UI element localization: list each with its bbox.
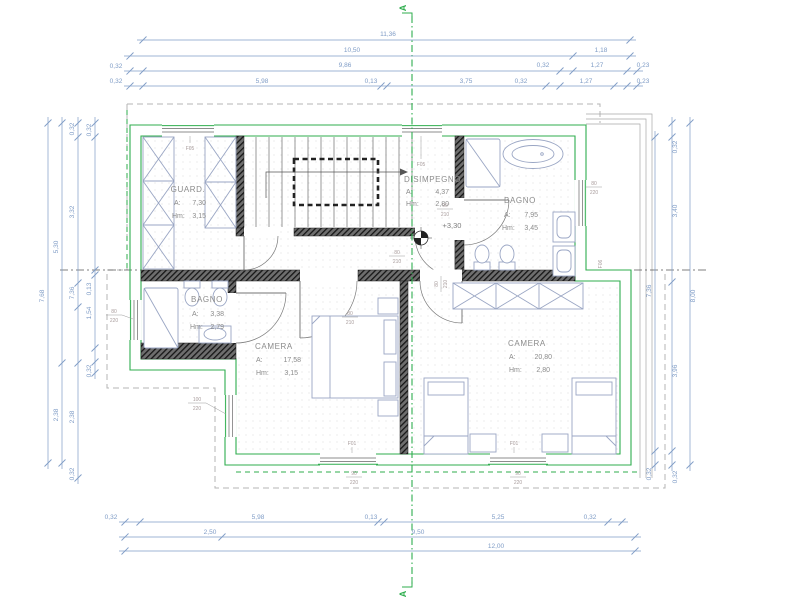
dimension-label: 0,13	[365, 78, 378, 85]
window-tag: F05	[186, 146, 195, 152]
room-height-label: Hm:	[509, 367, 522, 374]
dimension-label: 12,00	[488, 543, 505, 550]
dimension-label: 0,32	[105, 514, 118, 521]
svg-text:80: 80	[434, 281, 440, 287]
bidet	[499, 245, 515, 270]
window-size-label: 100 220	[188, 397, 226, 414]
svg-text:90: 90	[442, 203, 448, 209]
dimension-label: 9,50	[412, 529, 425, 536]
room-name: BAGNO	[191, 295, 223, 304]
room-height-label: Hm:	[172, 213, 185, 220]
dimension-chain: 0,325,980,133,750,321,270,23	[110, 78, 650, 90]
dimension-chain: 0,323,403,960,32	[669, 117, 680, 483]
dimension-label: 7,36	[646, 284, 653, 297]
window-size-label: 90 220	[346, 471, 362, 486]
room-height-value: 3,45	[524, 225, 538, 232]
dimension-label: 7,36	[69, 286, 76, 299]
dimension-label: 0,32	[584, 514, 597, 521]
dimension-chain: 0,329,860,321,270,23	[110, 62, 650, 75]
shower	[144, 288, 178, 348]
floor-plan-canvas: GUARD. A: 7,30 Hm: 3,15 DISIMPEGNO A: 4,…	[0, 0, 800, 600]
room-height-value: 3,15	[284, 370, 298, 377]
floor-plan-drawing: GUARD. A: 7,30 Hm: 3,15 DISIMPEGNO A: 4,…	[0, 0, 800, 600]
dimension-label: 5,98	[252, 514, 265, 521]
svg-text:220: 220	[110, 318, 119, 324]
dimension-label: 3,75	[460, 78, 473, 85]
room-height-label: Hm:	[502, 225, 515, 232]
nightstand	[378, 400, 398, 416]
dimension-label: 0,32	[672, 140, 679, 153]
window-camera-left-side	[225, 395, 237, 437]
window-size-label: 80 220	[586, 181, 602, 196]
bathtub	[503, 140, 563, 169]
sink	[553, 246, 575, 276]
dimension-label: 0,23	[637, 62, 650, 69]
room-height-value: 2,79	[210, 324, 224, 331]
nightstand	[542, 434, 568, 452]
dimension-label: 5,30	[53, 240, 60, 253]
dimension-label: 3,40	[672, 204, 679, 217]
dimension-label: 0,32	[515, 78, 528, 85]
svg-text:220: 220	[193, 406, 202, 412]
svg-text:220: 220	[514, 480, 523, 486]
pillow	[384, 320, 396, 354]
dimension-label: 5,98	[256, 78, 269, 85]
svg-text:90: 90	[351, 471, 357, 477]
nightstand	[378, 298, 398, 314]
dimension-label: 10,50	[344, 47, 361, 54]
room-height-label: Hm:	[190, 324, 203, 331]
dimension-label: 9,86	[339, 62, 352, 69]
window-camera-right-bottom	[488, 454, 548, 466]
svg-text:80: 80	[394, 250, 400, 256]
section-marker-top: A	[398, 4, 408, 11]
dimension-label: 1,18	[595, 47, 608, 54]
dimension-label: 0,32	[646, 467, 653, 480]
svg-text:80: 80	[591, 181, 597, 187]
window-size-label: 90 220	[510, 471, 526, 486]
dimension-chain: 5,302,38	[53, 117, 66, 469]
dimension-label: 0,32	[69, 122, 76, 135]
window-tag: F01	[510, 441, 519, 447]
svg-text:210: 210	[393, 259, 402, 265]
room-name: CAMERA	[255, 342, 293, 351]
dimension-label: 7,68	[39, 289, 46, 302]
dimension-label: 0,32	[537, 62, 550, 69]
section-marker-bottom: A	[398, 590, 408, 597]
room-name: CAMERA	[508, 339, 546, 348]
dimension-label: 5,25	[492, 514, 505, 521]
dimension-chain: 0,323,327,362,380,32	[69, 117, 82, 484]
dimension-label: 8,00	[690, 289, 697, 302]
room-area-value: 3,38	[210, 311, 224, 318]
nightstand	[470, 434, 496, 452]
wardrobe	[453, 283, 583, 309]
svg-text:220: 220	[590, 190, 599, 196]
room-area-value: 17,58	[283, 357, 301, 364]
room-area-label: A:	[504, 212, 511, 219]
dimension-label: 3,96	[672, 364, 679, 377]
window-tag: F06	[598, 259, 604, 268]
toilet	[474, 245, 490, 270]
dimension-chain: 0,325,980,135,250,32	[105, 514, 628, 526]
svg-text:210: 210	[346, 320, 355, 326]
dimension-label: 0,13	[365, 514, 378, 521]
dimension-label: 0,32	[110, 78, 123, 85]
dimension-chain: 10,501,18	[124, 47, 636, 60]
single-bed	[572, 378, 616, 454]
dimension-label: 0,23	[637, 78, 650, 85]
dimension-chain: 8,00	[687, 117, 698, 471]
window-tag: F05	[417, 162, 426, 168]
room-area-value: 20,80	[534, 354, 552, 361]
window-stairs-top	[402, 125, 442, 137]
dimension-chain: 2,509,50	[119, 529, 641, 541]
dimension-label: 3,32	[69, 205, 76, 218]
dimension-label: 0,32	[110, 63, 123, 70]
dimension-label: 0,13	[86, 282, 93, 295]
window-bathroom-right	[575, 180, 587, 226]
svg-text:210: 210	[443, 280, 449, 289]
svg-text:220: 220	[350, 480, 359, 486]
dimension-label: 1,27	[580, 78, 593, 85]
room-height-label: Hm:	[256, 370, 269, 377]
svg-text:100: 100	[193, 397, 202, 403]
svg-text:80: 80	[111, 309, 117, 315]
dimension-label: 2,38	[53, 408, 60, 421]
room-name: GUARD.	[171, 185, 206, 194]
dimension-label: 0,32	[672, 470, 679, 483]
dimension-label: 2,50	[204, 529, 217, 536]
window-bagno-left	[130, 300, 142, 340]
dimension-chain: 0,320,131,540,32	[86, 117, 99, 379]
pillow	[384, 362, 396, 396]
room-area-label: A:	[256, 357, 263, 364]
svg-text:210: 210	[441, 212, 450, 218]
window-camera-left-bottom	[318, 454, 378, 466]
level-value: +3,30	[443, 221, 462, 230]
dimension-label: 11,36	[380, 31, 396, 38]
window-tag: F01	[348, 441, 357, 447]
room-area-label: A:	[509, 354, 516, 361]
room-area-label: A:	[192, 311, 199, 318]
dimension-label: 0,32	[86, 123, 93, 136]
dimension-label: 2,38	[69, 410, 76, 423]
room-area-value: 7,95	[524, 212, 538, 219]
svg-text:80: 80	[347, 311, 353, 317]
room-area-label: A:	[174, 200, 181, 207]
room-name: DISIMPEGNO	[404, 175, 461, 184]
single-bed	[424, 378, 468, 454]
dimension-label: 1,27	[591, 62, 604, 69]
dimension-chain: 11,36	[137, 31, 636, 44]
window-guard-top	[162, 125, 214, 137]
shower	[466, 139, 500, 187]
room-height-value: 2,80	[536, 367, 550, 374]
dimension-label: 0,32	[86, 364, 93, 377]
svg-text:90: 90	[515, 471, 521, 477]
room-area-value: 4,37	[435, 189, 449, 196]
room-height-value: 3,15	[192, 213, 206, 220]
dimension-chain: 7,68	[39, 117, 52, 469]
dimension-chain: 12,00	[119, 543, 641, 555]
room-name: BAGNO	[504, 196, 536, 205]
room-area-value: 7,30	[192, 200, 206, 207]
camera-left-furniture	[312, 298, 398, 416]
dimension-label: 1,54	[86, 306, 93, 319]
sink	[553, 212, 575, 242]
dimension-label: 0,32	[69, 467, 76, 480]
window-size-label: 80 220	[106, 309, 133, 324]
